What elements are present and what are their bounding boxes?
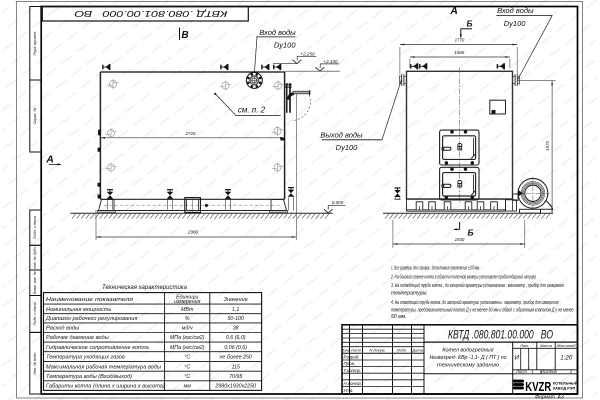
- svg-text:Изм.: Изм.: [341, 348, 350, 353]
- svg-text:А: А: [449, 5, 458, 17]
- svg-text:Дата: Дата: [411, 348, 423, 353]
- svg-text:1975: 1975: [545, 141, 550, 151]
- svg-text:температуры.: температуры.: [391, 291, 428, 297]
- svg-text:Справ. №: Справ. №: [33, 108, 37, 125]
- svg-text:А: А: [45, 154, 54, 166]
- svg-text:техническому заданию: техническому заданию: [437, 362, 499, 368]
- svg-text:КВТД .080.801.00.000 ВО: КВТД .080.801.00.000 ВО: [74, 9, 228, 19]
- svg-text:Dy100: Dy100: [504, 19, 527, 28]
- svg-text:50-100: 50-100: [227, 316, 244, 322]
- svg-text:Максимальная рабочая температу: Максимальная рабочая температура воды: [46, 364, 161, 370]
- svg-text:Dy100: Dy100: [336, 143, 359, 152]
- svg-text:Разраб.: Разраб.: [344, 355, 360, 360]
- svg-text:температуры, предохранительный: температуры, предохранительный клапан Д …: [391, 306, 574, 313]
- svg-text:N докум.: N докум.: [369, 348, 385, 353]
- svg-text:Температура уходящих газов: Температура уходящих газов: [46, 355, 125, 361]
- svg-text:Перв. примен.: Перв. примен.: [33, 31, 37, 56]
- svg-text:Листов: Листов: [540, 369, 557, 374]
- svg-text:+2.100: +2.100: [323, 59, 338, 64]
- svg-text:А3: А3: [557, 395, 564, 400]
- svg-text:В: В: [181, 30, 188, 41]
- svg-text:Выход воды: Выход воды: [320, 131, 363, 140]
- svg-text:Лист: Лист: [350, 348, 362, 353]
- svg-text:Расход воды: Расход воды: [46, 326, 79, 332]
- svg-text:°С: °С: [184, 364, 190, 370]
- svg-text:1,1: 1,1: [232, 307, 239, 313]
- svg-text:+2.250: +2.250: [300, 51, 315, 56]
- svg-text:Подп. и дата: Подп. и дата: [33, 302, 37, 325]
- svg-text:Рабочее давление воды: Рабочее давление воды: [46, 335, 109, 341]
- svg-text:измерения: измерения: [174, 299, 201, 305]
- svg-text:И: И: [514, 355, 519, 362]
- svg-text:Dy100: Dy100: [274, 41, 297, 50]
- svg-text:Инв. № дубл.: Инв. № дубл.: [33, 246, 37, 269]
- svg-text:4. На отводящей трубе котла ,: 4. На отводящей трубе котла ,до запорной…: [391, 299, 559, 306]
- svg-text:Формат: Формат: [535, 395, 555, 400]
- svg-text:Лит.: Лит.: [519, 343, 529, 348]
- svg-text:1: 1: [531, 369, 533, 374]
- svg-text:3. На подводящей трубе котла: 3. На подводящей трубе котла , до запорн…: [391, 282, 564, 289]
- svg-text:не более 250: не более 250: [220, 355, 252, 361]
- svg-text:Т.контр.: Т.контр.: [344, 368, 362, 373]
- svg-text:Подп.: Подп.: [397, 348, 408, 353]
- svg-text:Б: Б: [467, 228, 473, 238]
- svg-text:2980: 2980: [187, 230, 199, 235]
- svg-text:%: %: [185, 316, 190, 322]
- svg-text:МПа (кгс/см2): МПа (кгс/см2): [170, 345, 205, 351]
- svg-text:КВТД .080.801.00.000 ВО: КВТД .080.801.00.000 ВО: [448, 327, 553, 341]
- svg-text:1:20: 1:20: [560, 355, 573, 362]
- svg-text:ЗАВОД РЭП: ЗАВОД РЭП: [553, 386, 576, 390]
- svg-text:Утв.: Утв.: [344, 388, 354, 393]
- svg-text:2980х1930х2250: 2980х1930х2250: [214, 384, 256, 390]
- svg-text:1770: 1770: [455, 37, 465, 42]
- svg-text:Номинальная мощность: Номинальная мощность: [46, 307, 111, 313]
- svg-text:КОТЕЛЬНЫЙ: КОТЕЛЬНЫЙ: [553, 381, 578, 385]
- svg-text:Масштаб: Масштаб: [557, 343, 576, 348]
- svg-text:1560: 1560: [454, 50, 464, 55]
- svg-text:Масса: Масса: [540, 343, 553, 348]
- svg-text:0,6 (6,0): 0,6 (6,0): [226, 335, 246, 341]
- svg-text:Диапазон рабочего регулировани: Диапазон рабочего регулирования: [45, 316, 137, 322]
- svg-text:Инв. № подл.: Инв. № подл.: [33, 352, 37, 375]
- svg-text:Техническая характеристика: Техническая характеристика: [102, 285, 188, 291]
- svg-text:м3/ч: м3/ч: [182, 326, 193, 332]
- svg-text:МВт: МВт: [181, 307, 194, 313]
- svg-text:2725: 2725: [184, 131, 196, 136]
- svg-text:Пров.: Пров.: [344, 361, 356, 366]
- svg-text:Б: Б: [466, 19, 472, 29]
- svg-text:115: 115: [231, 364, 239, 370]
- svg-text:0,06 (0,6): 0,06 (0,6): [224, 345, 247, 351]
- svg-text:Гидравлическое сопротивление к: Гидравлическое сопротивление котла: [46, 345, 149, 351]
- svg-text:°С: °С: [184, 374, 190, 380]
- svg-text:Лист: Лист: [515, 369, 527, 374]
- svg-text:2. На боковой стенке котла в: 2. На боковой стенке котла в области топ…: [390, 273, 536, 280]
- svg-text:Вход воды: Вход воды: [497, 6, 534, 15]
- svg-text:°С: °С: [184, 355, 190, 361]
- svg-text:38: 38: [233, 326, 239, 332]
- svg-text:Значение: Значение: [224, 297, 248, 303]
- svg-text:МПа (кгс/см2): МПа (кгс/см2): [170, 335, 205, 341]
- svg-text:70/95: 70/95: [229, 374, 242, 380]
- svg-text:1. Все размеры для справок ,: 1. Все размеры для справок , допустимые …: [391, 266, 480, 272]
- svg-text:Н.контр.: Н.контр.: [344, 381, 363, 386]
- svg-text:Подп. и дата: Подп. и дата: [33, 216, 37, 239]
- svg-text:см. п. 2: см. п. 2: [238, 105, 266, 114]
- svg-text:Взам. инв. №: Взам. инв. №: [33, 271, 37, 294]
- svg-text:Габариты котла (длина х ширина: Габариты котла (длина х ширина х высота): [46, 384, 165, 390]
- svg-text:Температура воды (Вход/выход): Температура воды (Вход/выход): [46, 374, 132, 380]
- svg-text:50 мм.: 50 мм.: [391, 314, 407, 320]
- svg-text:мм: мм: [184, 384, 192, 390]
- svg-text:Вход воды: Вход воды: [259, 28, 296, 37]
- svg-text:1930: 1930: [455, 237, 465, 242]
- svg-text:Heatexpert- КВр -1,1- Д ( ПТ ): Heatexpert- КВр -1,1- Д ( ПТ ) по: [430, 355, 507, 361]
- svg-text:KVZR: KVZR: [525, 380, 551, 394]
- svg-text:Котел водогрейный: Котел водогрейный: [442, 347, 493, 354]
- svg-text:0.000: 0.000: [332, 200, 344, 205]
- svg-text:Наименование показателя: Наименование показателя: [46, 297, 133, 303]
